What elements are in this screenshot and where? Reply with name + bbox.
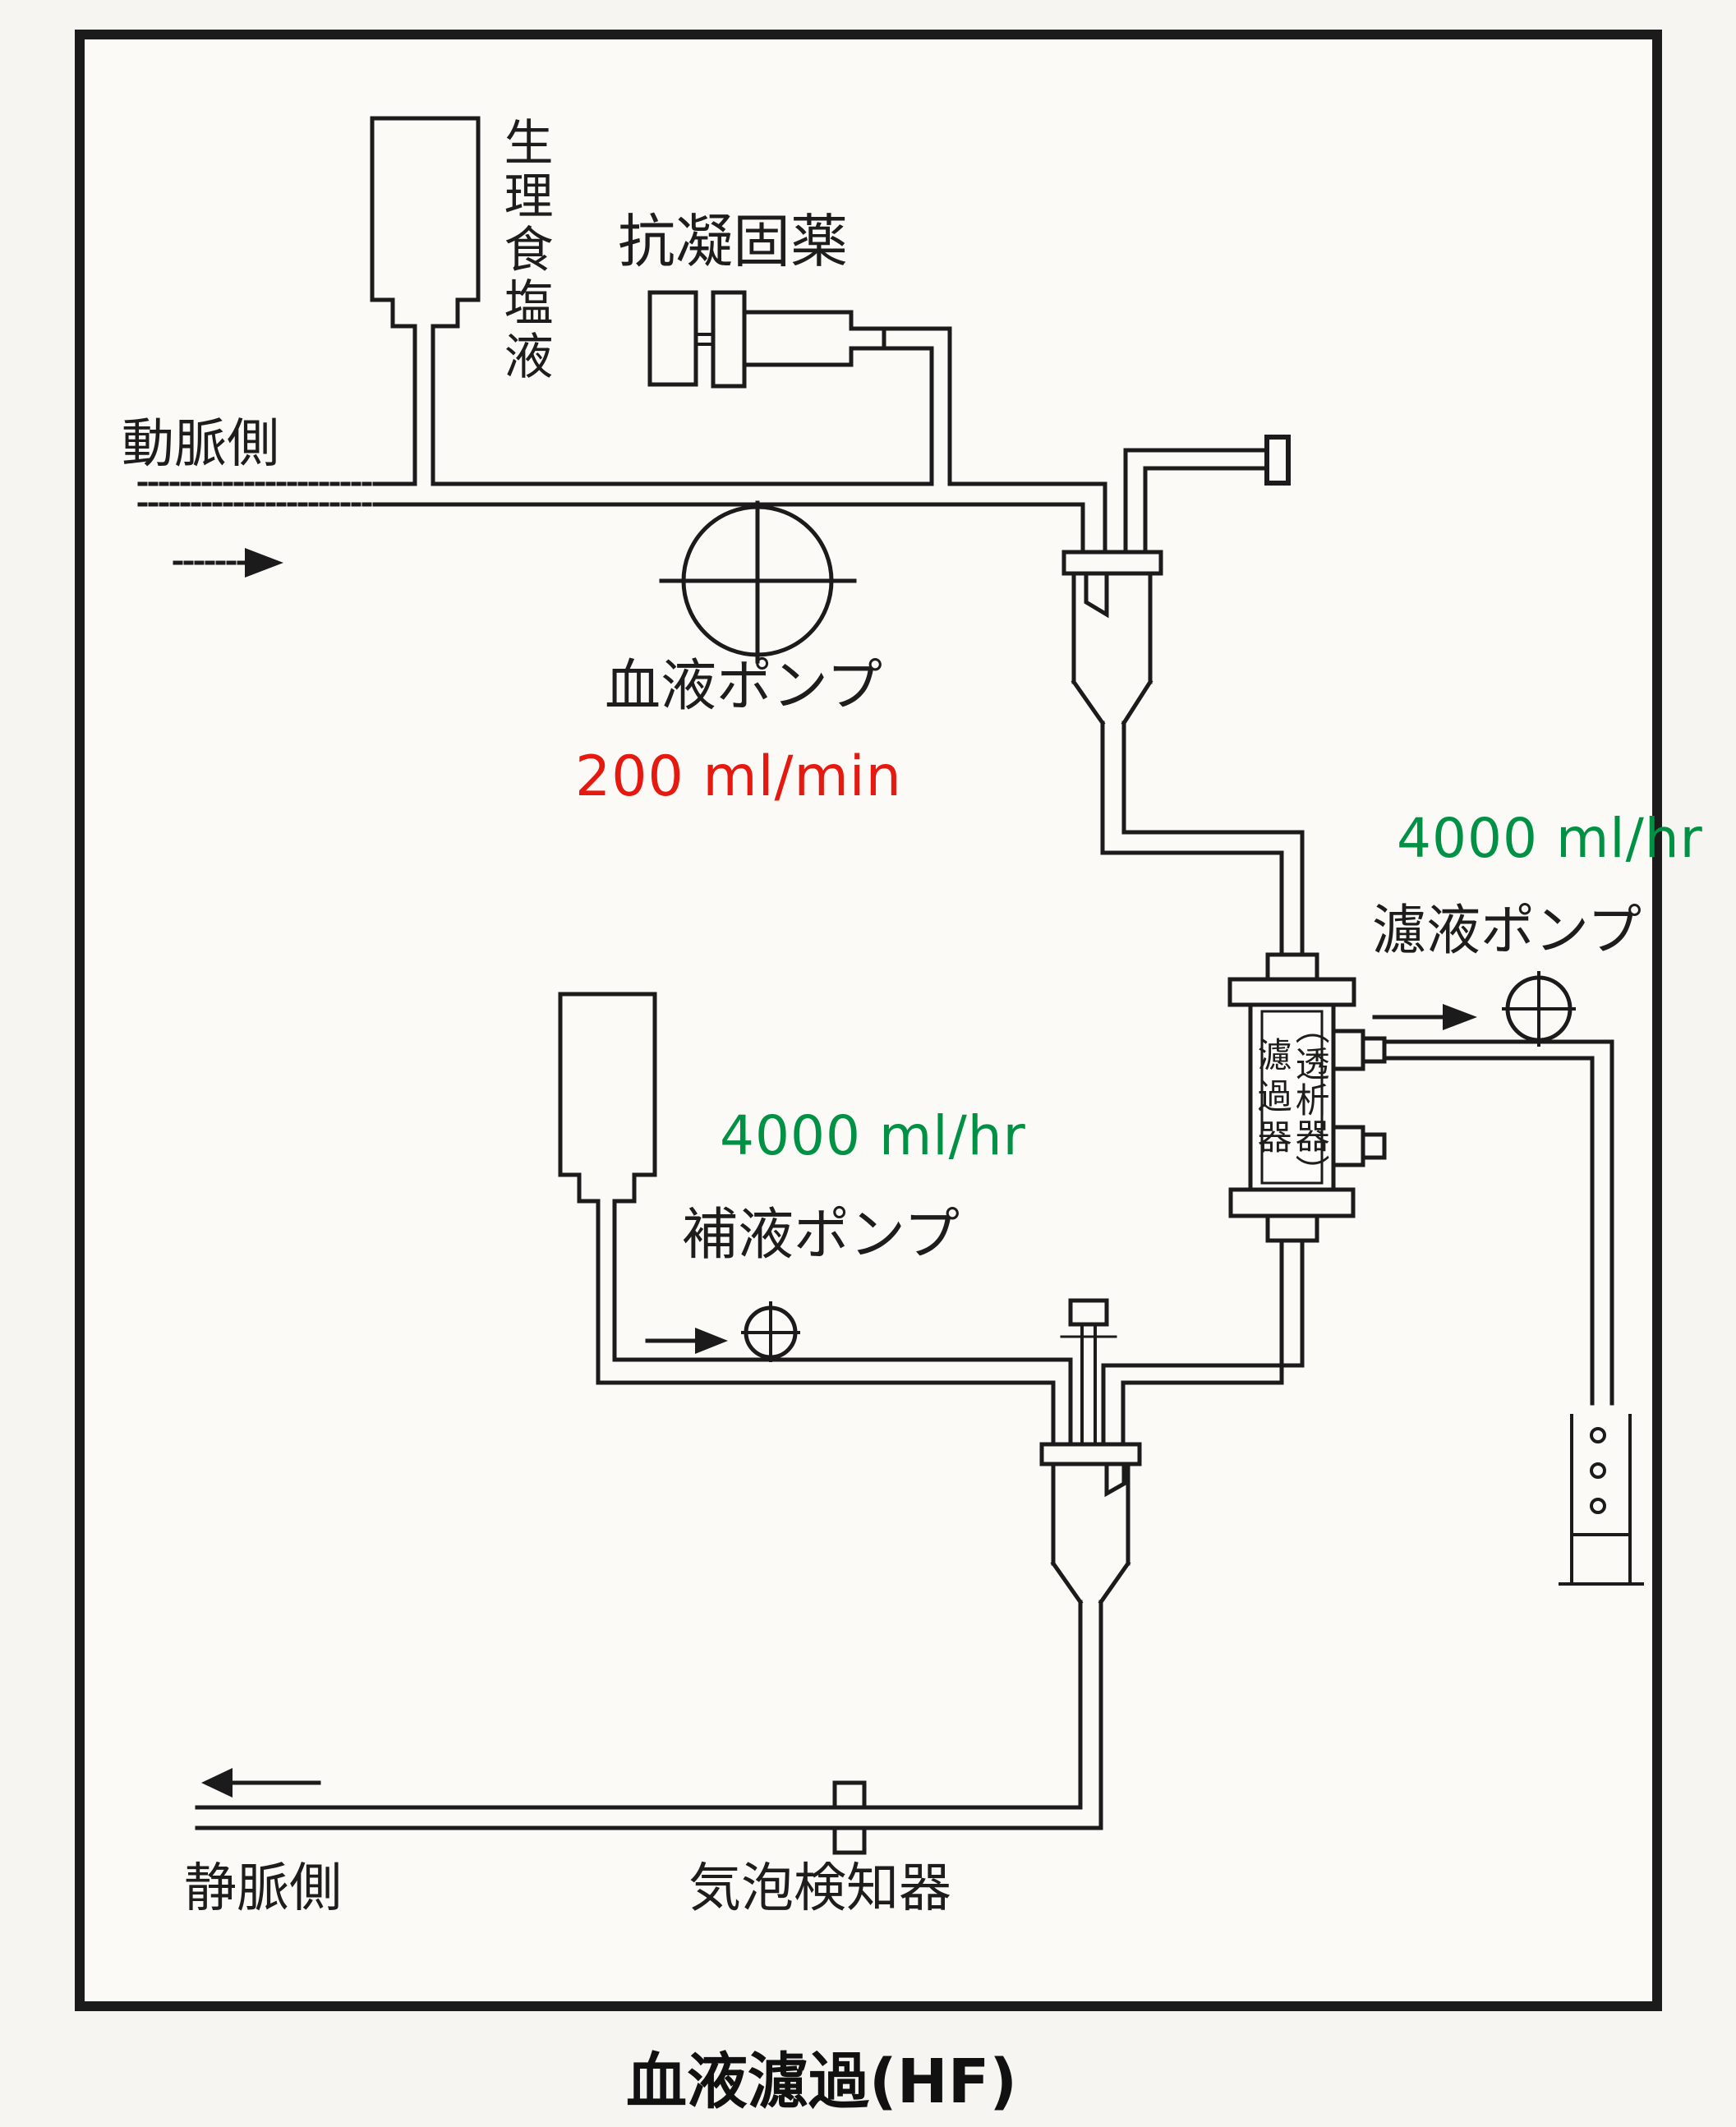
venous-side-label: 静脈側 <box>184 1862 342 1917</box>
blood-pump-label: 血液ポンプ <box>605 657 882 716</box>
filtrate-pump-label: 濾液ポンプ <box>1372 902 1642 959</box>
anticoagulant-label: 抗凝固薬 <box>618 212 848 273</box>
hemofiltration-diagram: 動脈側 生理食塩液 抗凝固薬 血液ポンプ 200 ml/min 4000 ml/… <box>0 0 1736 2127</box>
bubble-detector-label: 気泡検知器 <box>688 1862 951 1917</box>
circuit-artwork <box>0 0 1736 2127</box>
filtrate-rate: 4000 ml/hr <box>1397 810 1703 867</box>
diagram-title: 血液濾過(HF) <box>0 2033 1643 2120</box>
replacement-rate: 4000 ml/hr <box>720 1107 1026 1164</box>
replacement-pump-label: 補液ポンプ <box>682 1206 960 1264</box>
dialyzer-label-secondary: （透析器） <box>1292 1010 1328 1186</box>
saline-label: 生理食塩液 <box>498 117 550 445</box>
arterial-side-label: 動脈側 <box>122 417 279 472</box>
dialyzer-label-primary: 濾過器 <box>1254 1037 1290 1185</box>
blood-pump-rate: 200 ml/min <box>575 748 902 806</box>
